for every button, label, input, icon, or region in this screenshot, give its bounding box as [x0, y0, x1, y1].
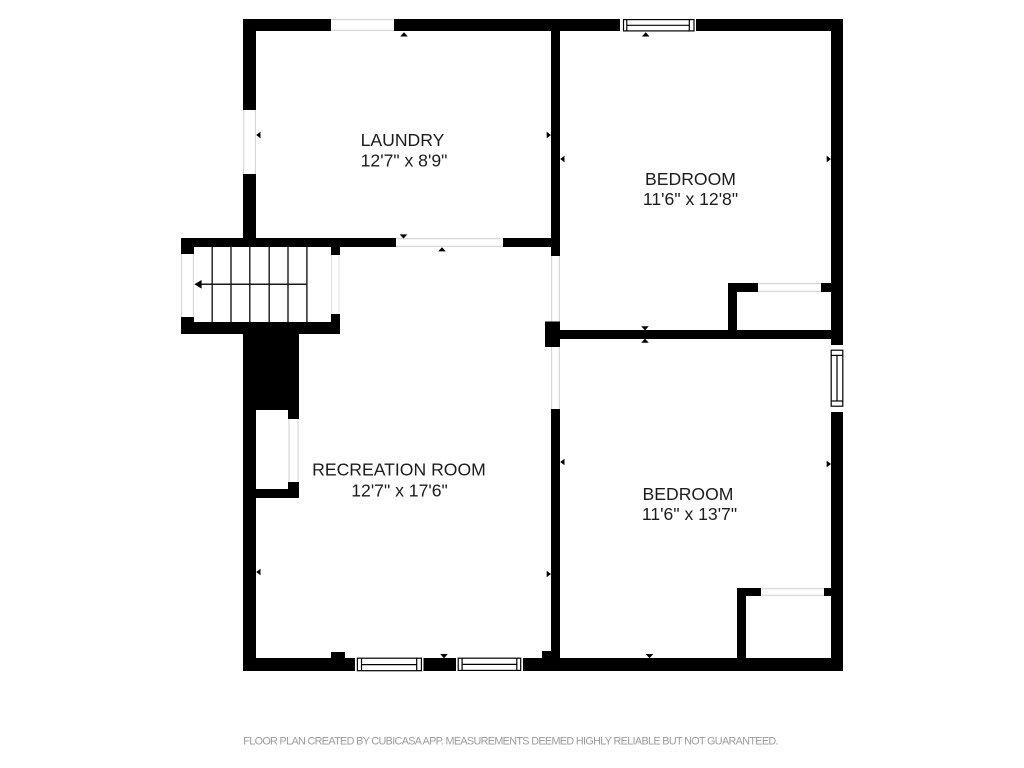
svg-text:11'6" x 13'7": 11'6" x 13'7": [642, 504, 737, 524]
svg-text:BEDROOM: BEDROOM: [643, 484, 734, 504]
svg-text:BEDROOM: BEDROOM: [645, 169, 736, 189]
svg-text:12'7" x 17'6": 12'7" x 17'6": [351, 481, 448, 501]
svg-text:12'7" x 8'9": 12'7" x 8'9": [361, 151, 448, 171]
svg-text:11'6" x 12'8": 11'6" x 12'8": [643, 189, 738, 209]
svg-text:FLOOR PLAN CREATED BY CUBICASA: FLOOR PLAN CREATED BY CUBICASA APP. MEAS…: [243, 736, 778, 748]
svg-text:RECREATION ROOM: RECREATION ROOM: [312, 460, 486, 480]
svg-text:LAUNDRY: LAUNDRY: [361, 130, 445, 150]
